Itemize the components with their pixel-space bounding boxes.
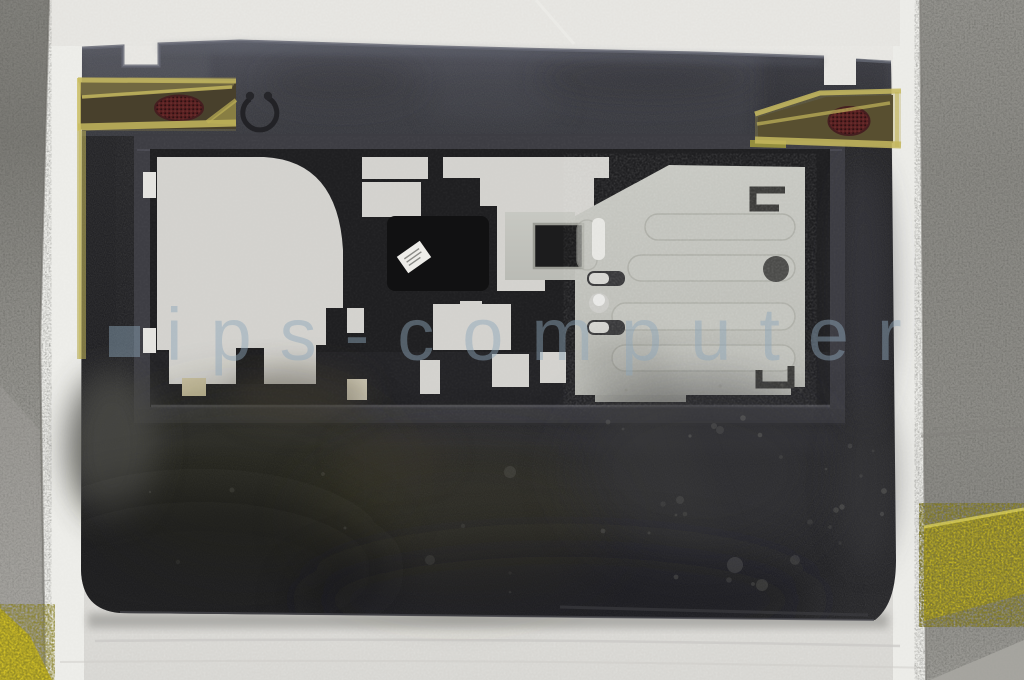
svg-text:ips-computer: ips-computer (166, 293, 930, 376)
